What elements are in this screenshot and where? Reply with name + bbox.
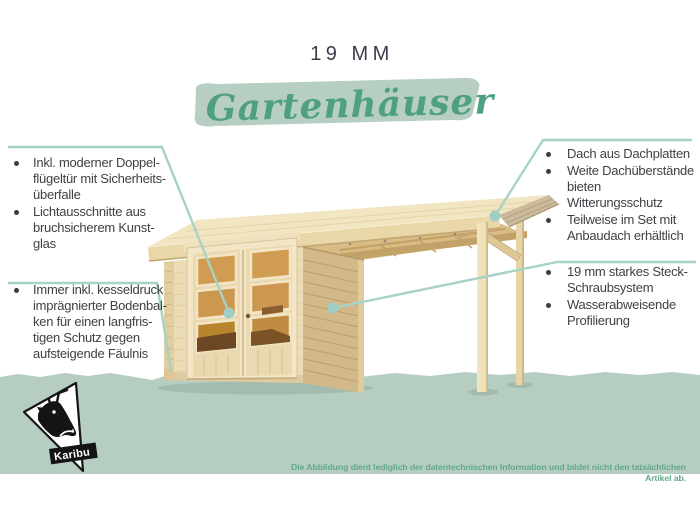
bullet-icon xyxy=(546,270,551,275)
double-door xyxy=(184,232,300,380)
bullet-icon xyxy=(546,303,551,308)
canopy-front-post xyxy=(477,222,488,392)
bullet-icon xyxy=(14,161,19,166)
canopy-rear-post xyxy=(516,210,524,385)
feature-list-right-bottom: 19 mm starkes Steck- Schraubsystem Wasse… xyxy=(546,264,698,330)
feature-item: Lichtausschnitte aus bruchsicherem Kunst… xyxy=(14,204,196,252)
door-handle xyxy=(246,314,250,318)
feature-item: Dach aus Dachplatten xyxy=(546,146,698,162)
bullet-icon xyxy=(14,210,19,215)
door-callout-dot xyxy=(224,308,235,319)
feature-item: Inkl. moderner Doppel- flügeltür mit Sic… xyxy=(14,155,196,203)
feature-list-left-bottom: Immer inkl. kesseldruck imprägnierter Bo… xyxy=(14,282,196,363)
feature-item: Immer inkl. kesseldruck imprägnierter Bo… xyxy=(14,282,196,362)
shed-side-wall xyxy=(303,247,364,393)
bullet-icon xyxy=(546,169,551,174)
feature-item: Teilweise im Set mit Anbaudach erhältlic… xyxy=(546,212,698,244)
feature-item: Wasserabweisende Profilierung xyxy=(546,297,698,329)
bullet-icon xyxy=(546,152,551,157)
bullet-icon xyxy=(546,218,551,223)
feature-list-right-top: Dach aus Dachplatten Weite Dachüberständ… xyxy=(546,146,698,245)
garden-house-illustration xyxy=(148,195,559,393)
feature-list-left-top: Inkl. moderner Doppel- flügeltür mit Sic… xyxy=(14,155,196,253)
infographic-page: Karibu 19 MM Gartenhäuser Inkl. moderner… xyxy=(0,0,700,525)
wall-callout-dot xyxy=(328,303,339,314)
category-label: 19 MM xyxy=(0,43,700,66)
bullet-icon xyxy=(14,288,19,293)
roof-callout-dot xyxy=(490,211,501,222)
feature-item: Weite Dachüberstände bieten Witterungssc… xyxy=(546,163,698,211)
disclaimer-text: Die Abbildung dient lediglich der datent… xyxy=(266,462,686,484)
feature-item: 19 mm starkes Steck- Schraubsystem xyxy=(546,264,698,296)
